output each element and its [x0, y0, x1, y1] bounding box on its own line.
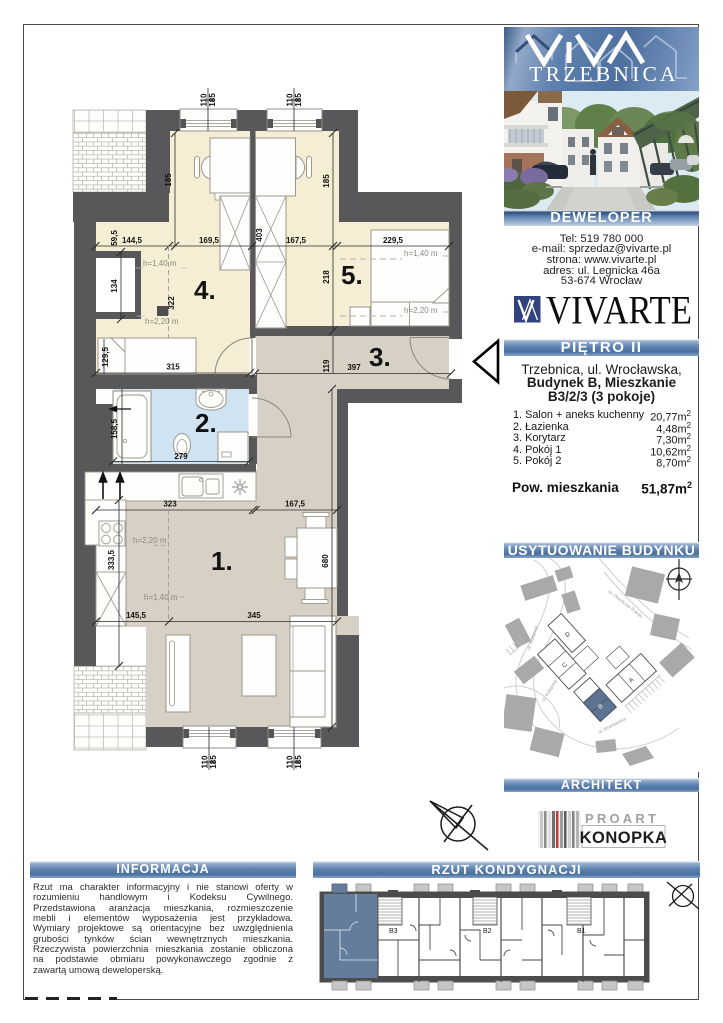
svg-text:134: 134: [110, 279, 119, 293]
svg-text:229,5: 229,5: [383, 236, 404, 245]
svg-text:h=1,40 m: h=1,40 m: [144, 593, 178, 602]
svg-text:PROART: PROART: [585, 811, 659, 826]
svg-text:323: 323: [163, 500, 177, 509]
svg-text:218: 218: [322, 270, 331, 284]
svg-text:145,5: 145,5: [126, 611, 147, 620]
svg-text:129,5: 129,5: [101, 346, 110, 367]
svg-text:1.: 1.: [211, 546, 233, 576]
svg-text:B1: B1: [577, 928, 586, 935]
svg-text:TRZEBNICA: TRZEBNICA: [529, 62, 678, 86]
svg-text:315: 315: [166, 363, 180, 372]
svg-text:h=2,20 m: h=2,20 m: [133, 536, 167, 545]
svg-text:185: 185: [164, 173, 173, 187]
svg-text:158,5: 158,5: [110, 418, 119, 439]
svg-text:KONOPKA: KONOPKA: [580, 829, 666, 847]
svg-text:185: 185: [209, 755, 218, 769]
svg-text:322: 322: [167, 296, 176, 310]
svg-text:144,5: 144,5: [122, 236, 143, 245]
svg-text:2.: 2.: [195, 408, 217, 438]
svg-text:185: 185: [294, 755, 303, 769]
svg-text:B2: B2: [483, 928, 492, 935]
svg-text:4.: 4.: [194, 275, 216, 305]
svg-text:h=2,20 m: h=2,20 m: [404, 306, 438, 315]
svg-text:185: 185: [208, 93, 217, 107]
svg-text:345: 345: [247, 611, 261, 620]
svg-text:h=1,40 m: h=1,40 m: [404, 249, 438, 258]
svg-text:3.: 3.: [369, 342, 391, 372]
svg-text:279: 279: [174, 452, 188, 461]
svg-text:h=1,40 m: h=1,40 m: [143, 259, 177, 268]
svg-text:185: 185: [322, 174, 331, 188]
svg-text:167,5: 167,5: [286, 236, 307, 245]
svg-text:680: 680: [321, 554, 330, 568]
svg-text:169,5: 169,5: [199, 236, 220, 245]
svg-text:333,5: 333,5: [107, 549, 116, 570]
svg-text:119: 119: [322, 359, 331, 372]
svg-text:VIVARTE: VIVARTE: [546, 294, 692, 328]
svg-text:5.: 5.: [341, 260, 363, 290]
svg-text:397: 397: [347, 363, 361, 372]
svg-text:403: 403: [255, 228, 264, 242]
svg-text:B3: B3: [389, 928, 398, 935]
svg-text:185: 185: [294, 93, 303, 107]
svg-text:59,5: 59,5: [110, 230, 119, 246]
svg-text:h=2,20 m: h=2,20 m: [145, 317, 179, 326]
svg-text:167,5: 167,5: [285, 500, 306, 509]
